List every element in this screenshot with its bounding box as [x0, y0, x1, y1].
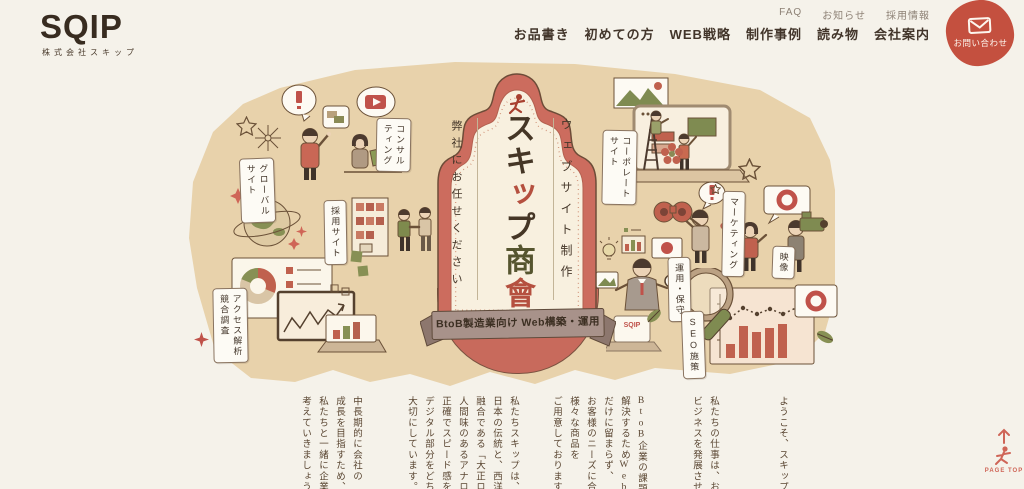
service-label-video: 映像 — [771, 246, 795, 280]
contact-button[interactable]: お問い合わせ — [944, 0, 1015, 68]
nav-item-menu[interactable]: お品書き — [514, 24, 570, 43]
emblem-side-text-right: ウェブサイト制作 — [558, 118, 575, 286]
logo-company-name: 株式会社スキップ — [40, 47, 138, 58]
service-label-consulting: コンサル ティング — [376, 118, 412, 173]
emblem-title-char: 商 — [500, 244, 535, 277]
contact-button-label: お問い合わせ — [954, 37, 1008, 49]
small-star-icon — [710, 184, 721, 194]
intro-paragraph: 私たちスキップは、 日本の伝統と、西洋 融合である「大正ロ 人間味のあるアナロ … — [402, 396, 521, 489]
intro-paragraph: BtoB企業の課題を 解決するためWebサ だけに留まらず、 お客様のニーズに合… — [547, 396, 649, 489]
service-label-seo: SEO施策 — [681, 311, 706, 379]
utility-nav: FAQ お知らせ 採用情報 — [779, 7, 930, 22]
intro-paragraph: ようこそ、スキップ — [773, 396, 790, 489]
main-nav: お品書き 初めての方 WEB戦略 制作事例 読み物 会社案内 — [514, 24, 930, 43]
diamond-sparkle-icon — [194, 332, 209, 347]
emblem-title: スキップ商會 — [479, 112, 555, 317]
ribbon-text: BtoB製造業向け Web構築・運用 — [434, 309, 602, 338]
service-label-marketing: マーケティング — [721, 191, 745, 277]
nav-item-recruit-info[interactable]: 採用情報 — [886, 7, 930, 22]
nav-item-company[interactable]: 会社案内 — [874, 24, 930, 43]
intro-paragraph: 中長期的に会社の 成長を目指すため、 私たちと一緒に企業 考えていきましょう — [296, 396, 364, 489]
square-deco-icon — [330, 284, 339, 293]
up-arrow-icon — [997, 428, 1011, 444]
service-label-access-analysis: アクセス解析 競合調査 — [212, 288, 248, 364]
runner-icon — [993, 445, 1015, 467]
service-label-recruit-site: 採用サイト — [323, 200, 347, 265]
logo-link[interactable]: SQIP 株式会社スキップ — [40, 10, 138, 58]
intro-paragraph: 私たちの仕事は、お ビジネスを発展させ — [687, 396, 721, 489]
laptop-screen-text: SQIP — [614, 322, 650, 329]
nav-item-first-time[interactable]: 初めての方 — [585, 24, 655, 43]
nav-item-web-strategy[interactable]: WEB戦略 — [670, 24, 731, 43]
page: SQIP 株式会社スキップ FAQ お知らせ 採用情報 お品書き 初めての方 W… — [0, 0, 1024, 489]
intro-section: ようこそ、スキップ 私たちの仕事は、お ビジネスを発展させ BtoB企業の課題を… — [296, 396, 790, 489]
service-label-corporate-site: コーポレート サイト — [601, 130, 637, 206]
page-top-label: PAGE TOP — [985, 468, 1023, 474]
emblem-title-char: ッ — [500, 178, 535, 211]
nav-item-news[interactable]: お知らせ — [822, 7, 866, 22]
flower-icon — [660, 142, 684, 166]
emblem-title-char: ス — [500, 112, 535, 145]
logo-text: SQIP — [40, 10, 138, 44]
emblem-divider-line — [477, 118, 478, 300]
emblem-side-text-left: 弊社にお任せください — [448, 120, 464, 290]
mail-icon — [967, 16, 992, 34]
square-deco-icon — [350, 250, 363, 263]
service-label-global-site: グローバル サイト — [239, 157, 276, 223]
leaf-icon — [814, 326, 836, 348]
emblem-title-char: プ — [500, 211, 535, 244]
page-top-button[interactable]: PAGE TOP — [982, 428, 1024, 484]
sparkle-icon — [296, 226, 307, 237]
nav-item-faq[interactable]: FAQ — [779, 7, 802, 22]
emblem-title-char: キ — [500, 145, 535, 178]
record-panel-illustration — [794, 284, 840, 322]
star-outline-icon — [738, 158, 761, 180]
nav-item-works[interactable]: 制作事例 — [746, 24, 802, 43]
burst-icon — [254, 124, 282, 152]
nav-item-readings[interactable]: 読み物 — [817, 24, 859, 43]
